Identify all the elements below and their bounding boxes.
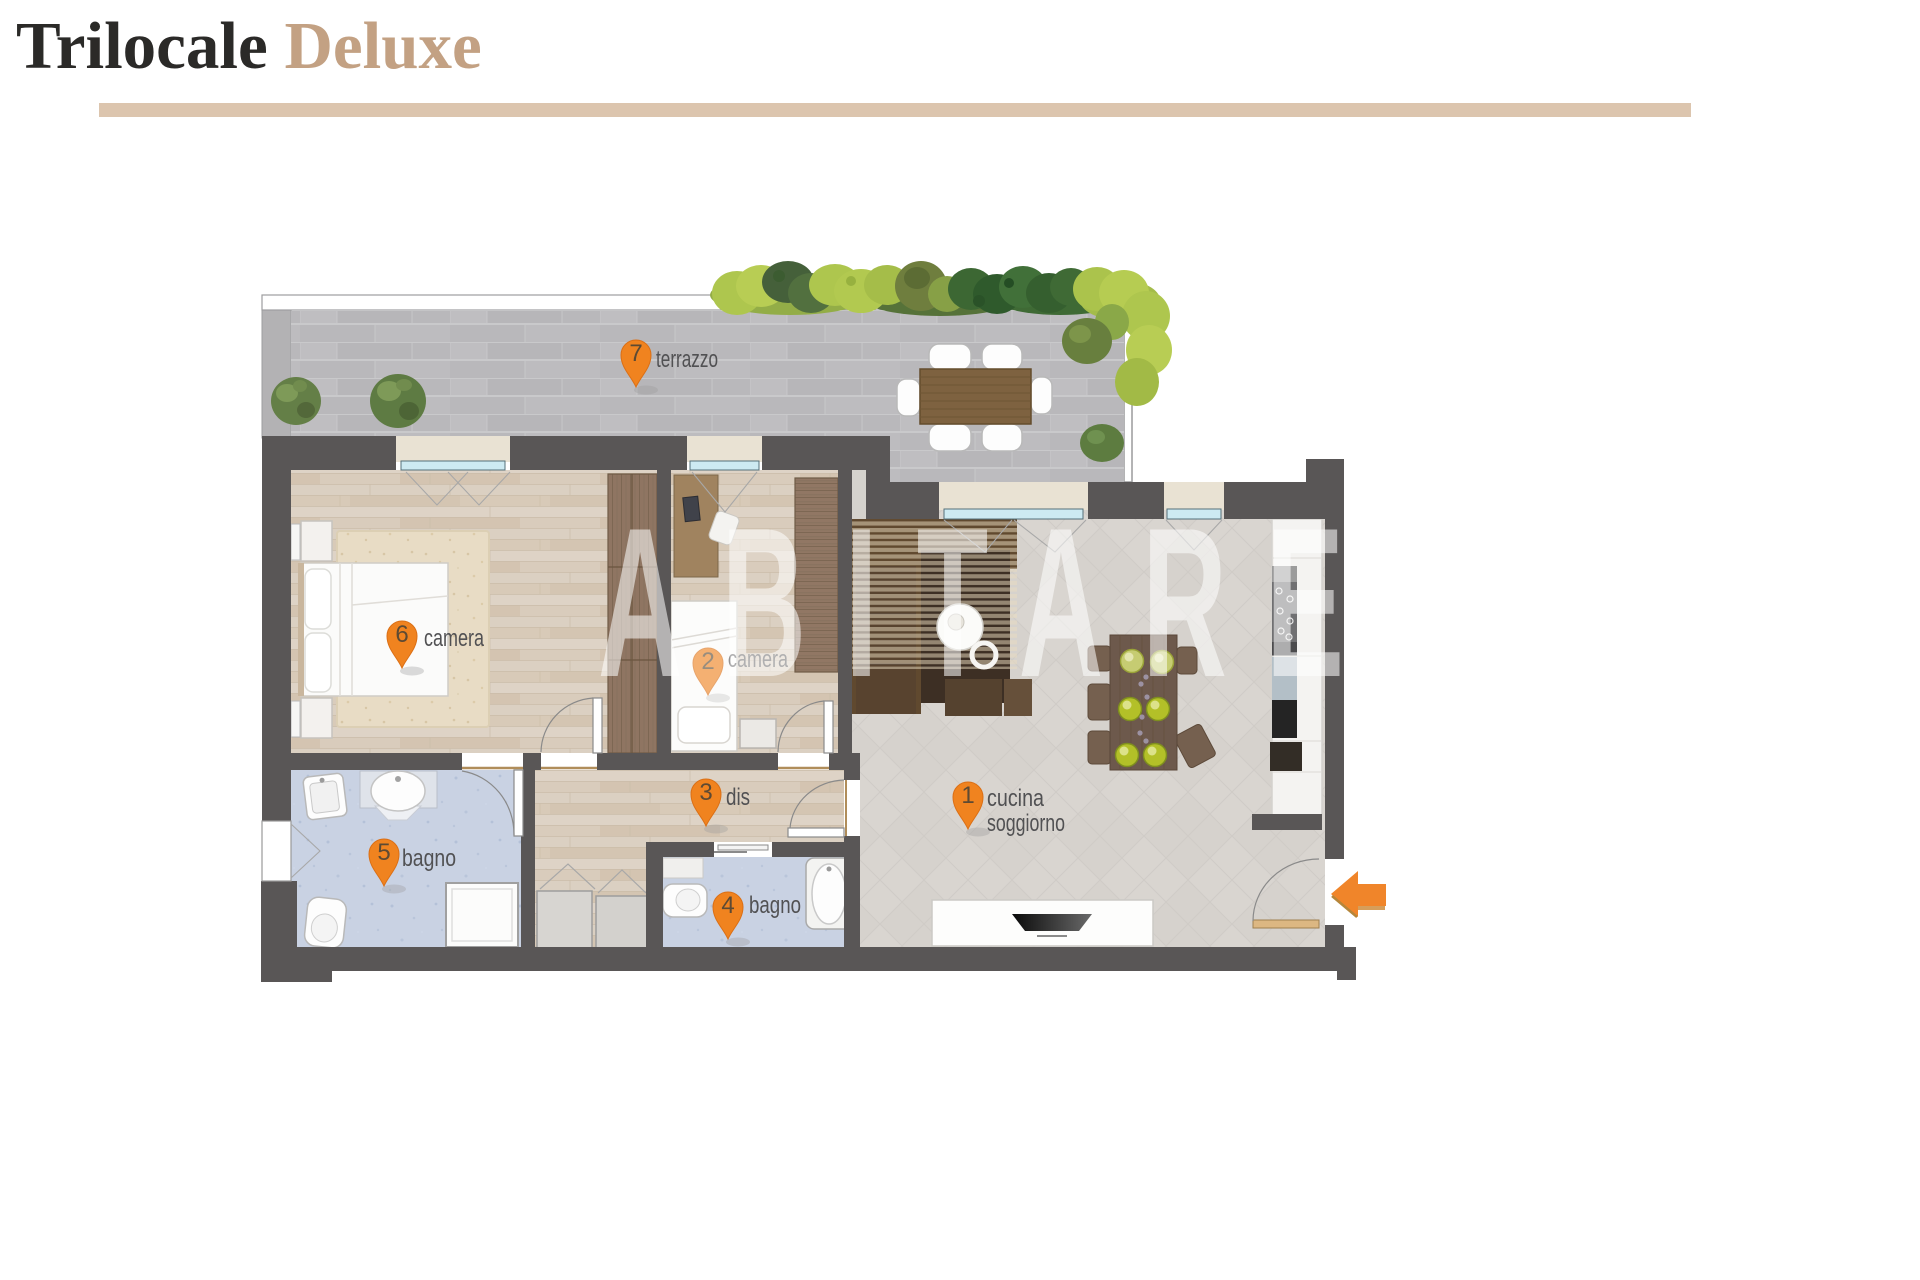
svg-text:cucina: cucina <box>987 785 1045 812</box>
svg-text:terrazzo: terrazzo <box>656 346 718 373</box>
svg-text:7: 7 <box>629 340 642 367</box>
svg-text:bagno: bagno <box>402 845 456 872</box>
svg-text:bagno: bagno <box>749 892 801 919</box>
svg-text:camera: camera <box>424 625 484 652</box>
svg-text:soggiorno: soggiorno <box>987 810 1065 837</box>
svg-text:6: 6 <box>395 621 408 648</box>
svg-text:5: 5 <box>377 839 390 866</box>
svg-text:4: 4 <box>721 892 734 919</box>
svg-text:1: 1 <box>961 782 974 809</box>
svg-text:Trilocale Deluxe: Trilocale Deluxe <box>16 9 482 83</box>
svg-text:3: 3 <box>699 779 712 806</box>
svg-text:ABITARE: ABITARE <box>598 484 1383 722</box>
svg-text:dis: dis <box>726 784 750 811</box>
